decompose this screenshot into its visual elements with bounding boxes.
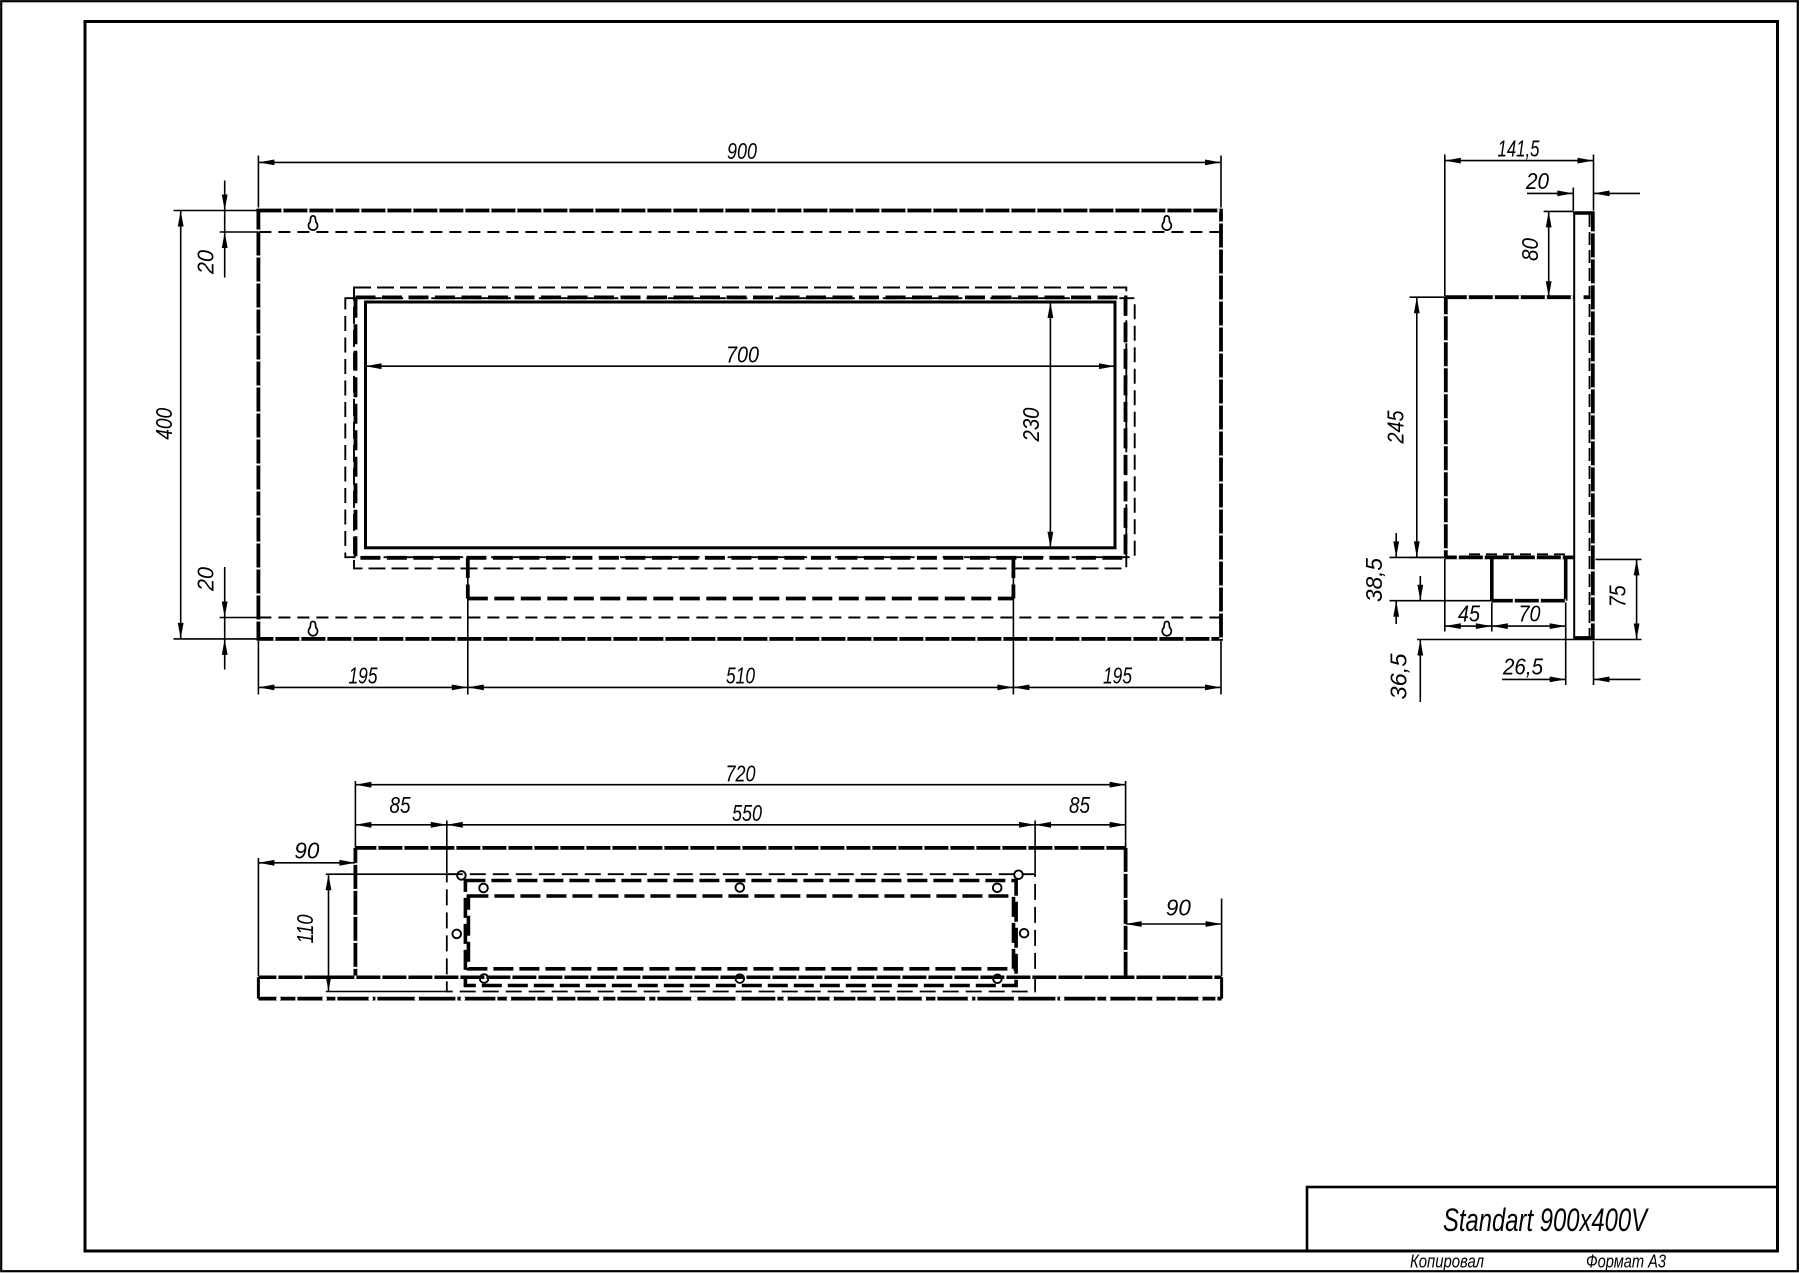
svg-text:75: 75 bbox=[1604, 585, 1630, 607]
svg-text:38,5: 38,5 bbox=[1361, 558, 1387, 602]
svg-text:80: 80 bbox=[1517, 238, 1543, 261]
svg-text:20: 20 bbox=[1525, 168, 1549, 194]
svg-text:20: 20 bbox=[193, 567, 219, 592]
svg-text:550: 550 bbox=[732, 800, 762, 826]
svg-text:400: 400 bbox=[151, 408, 177, 440]
svg-text:720: 720 bbox=[726, 760, 756, 786]
svg-text:26,5: 26,5 bbox=[1502, 653, 1543, 679]
svg-text:90: 90 bbox=[294, 837, 319, 863]
svg-text:510: 510 bbox=[726, 663, 755, 689]
svg-text:230: 230 bbox=[1018, 407, 1044, 442]
svg-text:36,5: 36,5 bbox=[1385, 653, 1411, 699]
svg-text:85: 85 bbox=[1069, 792, 1090, 818]
svg-text:45: 45 bbox=[1458, 600, 1480, 626]
svg-text:900: 900 bbox=[727, 138, 757, 164]
svg-text:110: 110 bbox=[292, 914, 318, 943]
svg-text:Standart 900x400V: Standart 900x400V bbox=[1443, 1202, 1649, 1238]
svg-text:Формат А3: Формат А3 bbox=[1586, 1251, 1667, 1272]
svg-text:90: 90 bbox=[1166, 895, 1191, 921]
svg-text:85: 85 bbox=[390, 792, 411, 818]
svg-text:20: 20 bbox=[193, 250, 219, 275]
svg-text:Копировал: Копировал bbox=[1410, 1251, 1484, 1272]
svg-text:195: 195 bbox=[349, 663, 378, 689]
svg-text:195: 195 bbox=[1103, 663, 1132, 689]
svg-text:70: 70 bbox=[1519, 600, 1541, 626]
svg-text:700: 700 bbox=[726, 342, 759, 368]
svg-text:141,5: 141,5 bbox=[1498, 136, 1540, 162]
svg-text:245: 245 bbox=[1383, 410, 1409, 444]
